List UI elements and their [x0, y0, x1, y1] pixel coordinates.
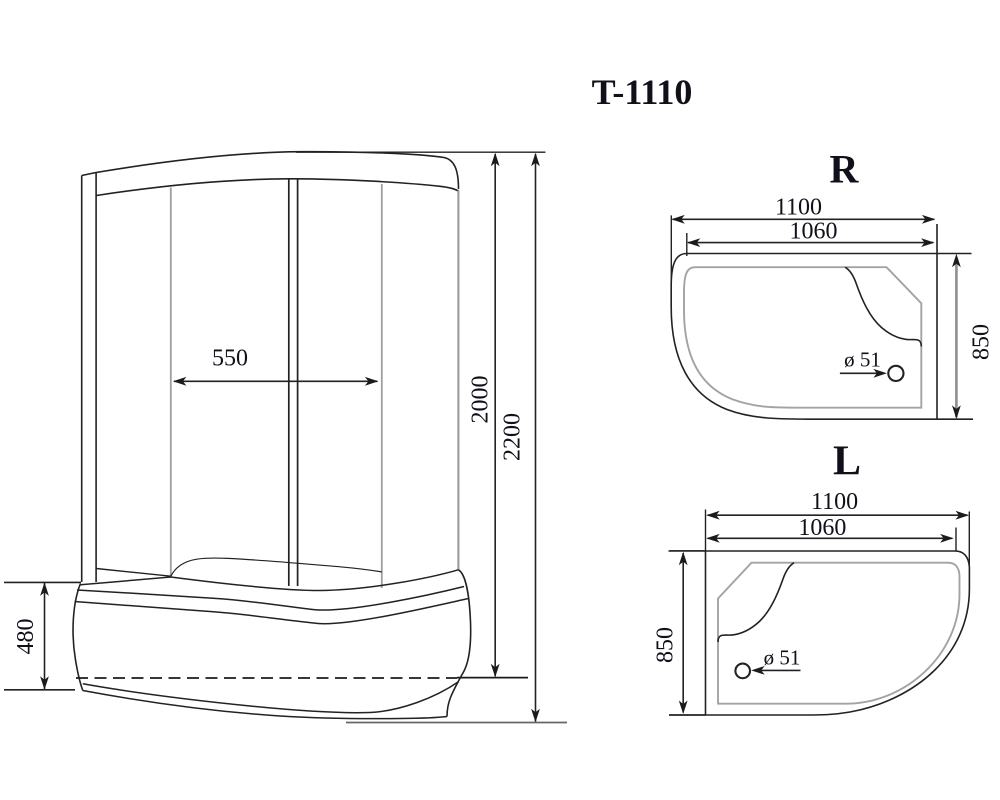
svg-text:550: 550: [212, 346, 248, 372]
svg-text:850: 850: [653, 627, 679, 663]
svg-text:L: L: [833, 439, 861, 485]
svg-text:T-1110: T-1110: [592, 72, 693, 112]
svg-text:1060: 1060: [798, 515, 846, 541]
svg-text:1100: 1100: [775, 195, 822, 221]
svg-text:2000: 2000: [468, 376, 494, 424]
svg-text:2200: 2200: [500, 413, 526, 461]
svg-text:480: 480: [13, 619, 39, 655]
svg-text:1100: 1100: [811, 489, 858, 515]
svg-text:ø 51: ø 51: [764, 646, 801, 670]
svg-text:1060: 1060: [790, 219, 838, 245]
svg-text:R: R: [830, 146, 860, 191]
svg-text:850: 850: [969, 324, 995, 360]
svg-text:ø 51: ø 51: [844, 348, 881, 372]
